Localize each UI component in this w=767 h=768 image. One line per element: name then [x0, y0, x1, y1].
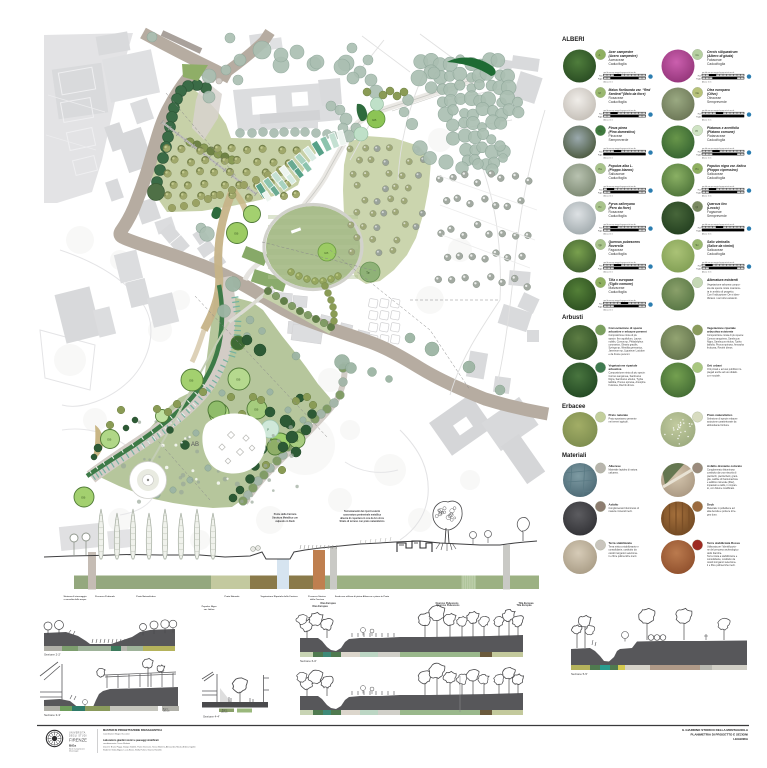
svg-text:Arbusti: Arbusti: [562, 315, 583, 321]
svg-text:Erbacee: Erbacee: [562, 404, 586, 410]
svg-text:Prato naturalistico: Prato naturalistico: [707, 413, 733, 417]
svg-text:fruticosa, Rovinb dimos.: fruticosa, Rovinb dimos.: [609, 384, 635, 387]
svg-text:co e sociale.: co e sociale.: [707, 374, 721, 377]
svg-text:Foglie: Foglie: [598, 78, 603, 80]
svg-text:Foglie: Foglie: [696, 116, 701, 118]
svg-text:Caducifoglia: Caducifoglia: [609, 100, 627, 104]
svg-text:Asfalto: Asfalto: [609, 503, 619, 507]
svg-text:MASTER IN PROGETTAZIONE PAESAG: MASTER IN PROGETTAZIONE PAESAGGISTICA: [103, 728, 162, 732]
svg-text:Foglie: Foglie: [598, 154, 603, 156]
svg-text:gno duro.: gno duro.: [707, 513, 718, 516]
svg-text:sta da specie miste mantenu-: sta da specie miste mantenu-: [707, 286, 741, 290]
svg-text:Vegetazione Ripariale della Ca: Vegetazione Ripariale della Carriera: [260, 595, 298, 598]
svg-text:GB: GB: [324, 251, 328, 255]
svg-text:coordinamento: Tessa Matteini: coordinamento: Tessa Matteini: [103, 742, 131, 745]
svg-text:Con l’indicazione Oe si iden-: Con l’indicazione Oe si iden-: [707, 293, 740, 297]
svg-text:FIRENZE: FIRENZE: [69, 738, 87, 743]
svg-text:materie minerali inerti.: materie minerali inerti.: [609, 510, 633, 513]
svg-text:Foglie: Foglie: [696, 78, 701, 80]
svg-text:Vegetazione arborea compo-: Vegetazione arborea compo-: [707, 283, 740, 287]
svg-text:e raccolta delle acque: e raccolta delle acque: [64, 598, 88, 601]
svg-text:abbondante fioritura.: abbondante fioritura.: [707, 424, 730, 427]
svg-text:LEGENDA: LEGENDA: [733, 737, 749, 741]
svg-text:Foglie: Foglie: [696, 268, 701, 270]
svg-text:Foglie: Foglie: [696, 154, 701, 156]
svg-text:Sezione 2-2': Sezione 2-2': [44, 653, 61, 657]
svg-text:Percorso Storico: Percorso Storico: [308, 595, 326, 598]
svg-text:IL GIARDINO STORICO DELLA MONT: IL GIARDINO STORICO DELLA MONTAGNOLA: [682, 728, 749, 732]
svg-text:Pa: Pa: [599, 167, 603, 171]
svg-text:PLANIMETRIA DI PROGETTO E SEZI: PLANIMETRIA DI PROGETTO E SEZIONI: [690, 733, 748, 737]
svg-text:della Carriera: della Carriera: [310, 599, 325, 601]
svg-text:ti e fibre polimeriche inerti.: ti e fibre polimeriche inerti.: [609, 555, 638, 558]
svg-text:GB: GB: [189, 379, 193, 383]
svg-text:Studenti: Giulia Bigazi, Lucia: Studenti: Giulia Bigazi, Lucia Bizzo, St…: [103, 749, 162, 752]
svg-text:Foglie: Foglie: [598, 230, 603, 232]
svg-text:Sezione 3-3': Sezione 3-3': [44, 713, 61, 717]
svg-text:M: M: [599, 91, 601, 95]
svg-text:Sempreverde: Sempreverde: [707, 214, 727, 218]
svg-text:GB: GB: [234, 232, 238, 236]
svg-text:Prato Naturalistico: Prato Naturalistico: [136, 595, 156, 598]
svg-text:Qi: Qi: [696, 205, 699, 209]
svg-text:Asfalto drenante colorato: Asfalto drenante colorato: [707, 464, 742, 468]
svg-text:Foglie: Foglie: [696, 192, 701, 194]
svg-text:Alberatura esistenti: Alberatura esistenti: [706, 278, 738, 282]
svg-text:Caducifoglia: Caducifoglia: [707, 62, 725, 66]
svg-text:Caducifoglia: Caducifoglia: [609, 176, 627, 180]
svg-text:AB: AB: [191, 442, 199, 448]
svg-text:Sistema di stoccaggio: Sistema di stoccaggio: [63, 595, 87, 598]
svg-text:Caducifoglia: Caducifoglia: [609, 62, 627, 66]
svg-text:Sempreverde: Sempreverde: [707, 100, 727, 104]
svg-text:Foglie: Foglie: [598, 192, 603, 194]
svg-text:GB: GB: [107, 438, 111, 442]
svg-text:Populus Nigra: Populus Nigra: [202, 606, 218, 608]
svg-text:to, con bitume modificato.: to, con bitume modificato.: [707, 487, 735, 490]
svg-text:arbustive e erbacee perenni: arbustive e erbacee perenni: [609, 330, 647, 334]
svg-text:GB: GB: [254, 408, 258, 412]
svg-text:Caducifoglia: Caducifoglia: [609, 252, 627, 256]
svg-text:Percorso Pedonale: Percorso Pedonale: [95, 596, 116, 598]
svg-text:Docenti: Bruno Foggi, Giorgio: Docenti: Bruno Foggi, Giorgio Galletti, …: [103, 745, 196, 748]
svg-text:alberato: alberato: [221, 711, 228, 714]
svg-text:Terra stabilizzata: Terra stabilizzata: [609, 541, 633, 545]
svg-text:GB: GB: [81, 496, 85, 500]
svg-text:Materiali: Materiali: [562, 453, 587, 459]
svg-text:Prato naturale: Prato naturale: [609, 413, 629, 417]
svg-text:GB: GB: [236, 378, 240, 382]
svg-text:Strato di terreno con prato na: Strato di terreno con prato naturalistic…: [339, 520, 385, 523]
svg-text:fruticosa, Rovinb dimos.: fruticosa, Rovinb dimos.: [707, 347, 733, 350]
svg-text:Caducifoglia: Caducifoglia: [707, 176, 725, 180]
svg-text:Quercus Pubescens: Quercus Pubescens: [437, 604, 461, 607]
svg-text:ti e fibre polimeriche inerti.: ti e fibre polimeriche inerti.: [707, 564, 736, 567]
svg-text:Orti urbani: Orti urbani: [707, 364, 722, 368]
svg-text:P: P: [267, 428, 269, 432]
svg-text:Te: Te: [366, 271, 370, 275]
svg-text:Deck: Deck: [707, 503, 714, 507]
svg-text:Sezione 6-6': Sezione 6-6': [300, 659, 317, 663]
svg-text:Alberese: Alberese: [609, 464, 622, 468]
svg-text:nei terreni agricoli.: nei terreni agricoli.: [609, 421, 629, 424]
svg-text:tificano i vari olivi esistent: tificano i vari olivi esistenti.: [707, 296, 738, 300]
svg-text:Olea Europea: Olea Europea: [312, 605, 328, 608]
svg-text:arbustiva esistente: arbustiva esistente: [707, 330, 734, 334]
svg-text:Caducifoglia: Caducifoglia: [707, 252, 725, 256]
svg-text:Foglie: Foglie: [598, 116, 603, 118]
svg-text:A: A: [599, 53, 601, 57]
svg-text:UNIVERSITA: UNIVERSITA: [69, 732, 86, 735]
svg-text:Tilia Europea: Tilia Europea: [517, 604, 533, 607]
svg-text:Oe: Oe: [696, 91, 700, 95]
svg-text:Sezione 5-5': Sezione 5-5': [571, 672, 588, 676]
svg-text:Prato Naturale: Prato Naturale: [225, 595, 241, 598]
svg-text:var. Italica: var. Italica: [204, 608, 215, 611]
svg-text:Sempreverde: Sempreverde: [609, 138, 629, 142]
svg-text:Pp: Pp: [599, 129, 603, 133]
svg-text:calcarea.: calcarea.: [609, 472, 619, 475]
svg-text:Caducifoglia: Caducifoglia: [609, 214, 627, 218]
svg-text:Pn: Pn: [696, 167, 700, 171]
svg-text:Coordinatore Biagio Guccione: Coordinatore Biagio Guccione: [103, 733, 131, 736]
svg-text:calpestio in Deck: calpestio in Deck: [275, 520, 295, 523]
svg-text:alberato: alberato: [163, 710, 170, 713]
svg-text:Caducifoglia: Caducifoglia: [609, 290, 627, 294]
svg-text:Foglie: Foglie: [696, 230, 701, 232]
svg-text:Qp: Qp: [599, 243, 603, 247]
svg-text:Caducifoglia: Caducifoglia: [707, 138, 725, 142]
svg-text:ta in ambito di progetto.: ta in ambito di progetto.: [707, 289, 734, 293]
svg-text:BiGa: BiGa: [69, 744, 76, 748]
svg-text:ALBERI: ALBERI: [562, 37, 585, 43]
svg-text:Foglie: Foglie: [598, 268, 603, 270]
svg-text:Laboratorio giardini storici e: Laboratorio giardini storici e paesaggi …: [103, 739, 159, 742]
svg-text:Sezione 4-4': Sezione 4-4': [203, 715, 220, 719]
svg-text:Terra stabilizzata Rossa: Terra stabilizzata Rossa: [707, 541, 740, 545]
svg-text:GB: GB: [372, 118, 376, 122]
svg-text:del paesaggio: del paesaggio: [69, 751, 79, 753]
svg-text:e da Fusce perenni.: e da Fusce perenni.: [609, 353, 631, 356]
svg-text:arbustiva: arbustiva: [609, 367, 622, 371]
svg-text:Scala con utilizzo di pietra A: Scala con utilizzo di pietra Alberese e …: [335, 595, 390, 598]
svg-text:Foglie: Foglie: [598, 306, 603, 308]
